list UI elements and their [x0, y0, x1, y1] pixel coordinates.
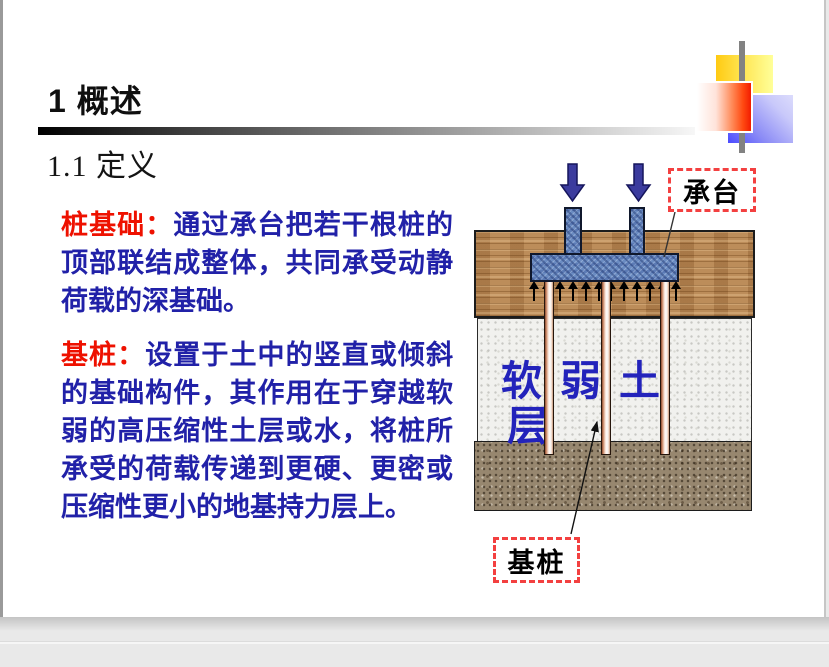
- up-arrow-icon: [529, 281, 539, 302]
- load-down-arrow-icon: [625, 163, 652, 203]
- up-arrow-icon: [671, 281, 681, 302]
- slide-page: 1 概述 1.1 定义 桩基础：通过承台把若干根桩的顶部联结成整体，共同承受动静…: [3, 0, 824, 617]
- pier-column-left: [564, 207, 582, 255]
- load-down-arrow-icon: [559, 163, 586, 203]
- definition-foundation-pile: 基桩：设置于土中的竖直或倾斜的基础构件，其作用在于穿越软弱的高压缩性土层或水，将…: [61, 336, 453, 526]
- title-rule-divider: [38, 127, 695, 135]
- decoration-red-square: [695, 81, 753, 133]
- corner-decoration: [693, 38, 803, 158]
- viewer-bottom-divider: [0, 641, 829, 644]
- pile-right: [660, 281, 670, 455]
- up-arrow-icon: [568, 281, 578, 302]
- section-subtitle: 1.1 定义: [47, 141, 158, 185]
- viewer-bottom-bar: [0, 617, 829, 667]
- up-arrow-icon: [645, 281, 655, 302]
- page-right-edge: [824, 0, 829, 617]
- slide-title: 1 概述: [48, 76, 143, 122]
- pile-cap: [530, 253, 679, 282]
- cap-callout-box: 承台: [668, 168, 756, 212]
- pier-column-right: [629, 207, 645, 255]
- page-left-edge: [0, 0, 3, 617]
- pile-middle: [601, 281, 611, 455]
- pile-callout-label: 基桩: [508, 541, 566, 580]
- up-arrow-icon: [619, 281, 629, 302]
- soft-soil-label-line1: 软弱土: [501, 361, 678, 402]
- up-arrow-icon: [555, 281, 565, 302]
- definition-term: 基桩：: [61, 340, 145, 370]
- soft-soil-label-line2: 层: [507, 406, 548, 447]
- definition-pile-foundation: 桩基础：通过承台把若干根桩的顶部联结成整体，共同承受动静荷载的深基础。: [61, 206, 453, 320]
- pile-callout-box: 基桩: [493, 537, 580, 583]
- cap-callout-label: 承台: [683, 171, 741, 210]
- up-arrow-icon: [581, 281, 591, 302]
- bearing-stratum-layer: [474, 441, 752, 511]
- up-arrow-icon: [632, 281, 642, 302]
- pile-left: [544, 281, 554, 455]
- pile-foundation-diagram: 软弱土 层: [463, 150, 808, 610]
- definition-term: 桩基础：: [61, 210, 173, 240]
